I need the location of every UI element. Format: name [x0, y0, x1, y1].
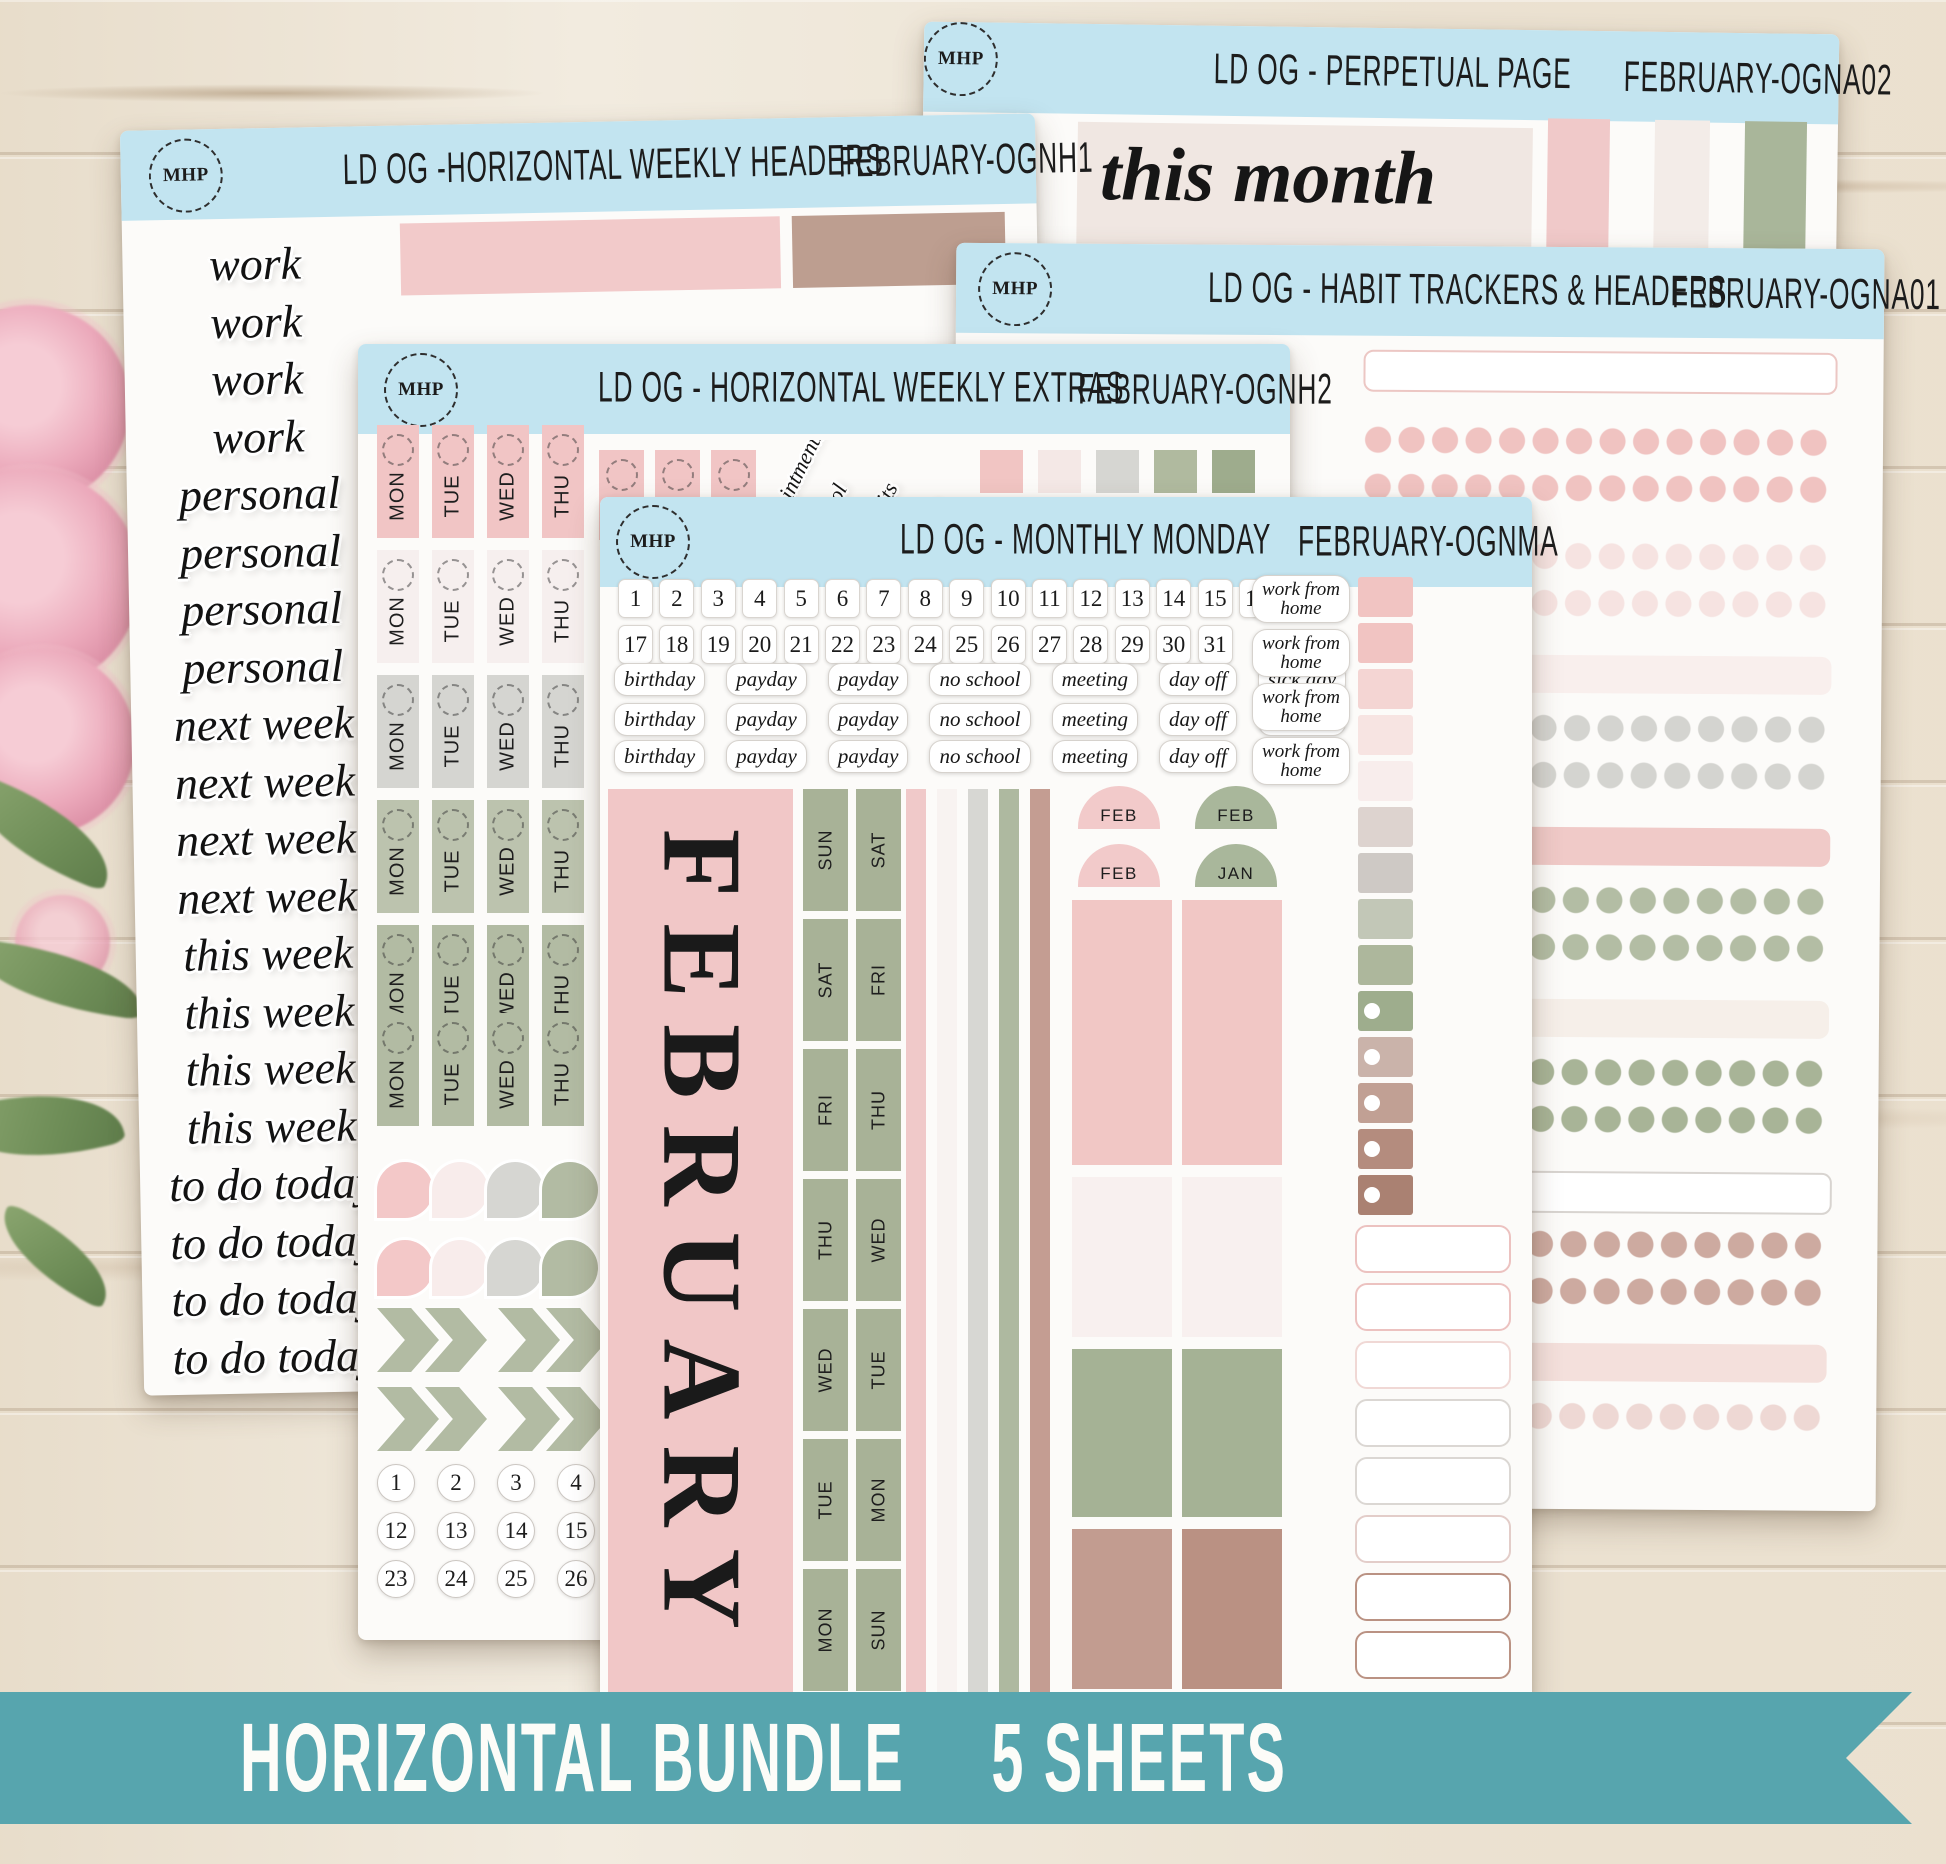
color-squares-row — [980, 450, 1280, 493]
day-tab-sticker: WED — [487, 425, 529, 538]
color-square-sticker — [1212, 450, 1255, 493]
small-square-sticker — [1358, 715, 1413, 755]
sheet-title: LD OG - HORIZONTAL WEEKLY EXTRAS — [598, 365, 1124, 408]
kit-box-sticker — [1182, 1529, 1282, 1689]
outlined-pill-sticker — [1355, 1225, 1511, 1273]
event-word-sticker: payday — [828, 663, 909, 696]
mhp-logo: MHP — [384, 353, 458, 427]
day-column-sticker: SAT — [856, 789, 901, 911]
day-tab-sticker: MON — [377, 800, 419, 913]
outlined-pill-sticker — [1355, 1399, 1511, 1447]
mhp-logo: MHP — [923, 22, 998, 97]
kit-box-sticker — [1182, 1349, 1282, 1517]
script-word-sticker: next week — [139, 870, 395, 923]
day-tab-sticker: WED — [487, 550, 529, 663]
script-word-sticker: work — [127, 238, 383, 291]
outlined-pills-column — [1355, 1225, 1507, 1695]
small-square-sticker — [1358, 669, 1413, 709]
dashed-circle-icon — [492, 684, 524, 716]
small-square-sticker — [1358, 945, 1413, 985]
day-tab-sticker: TUE — [432, 675, 474, 788]
dashed-circle-icon — [382, 559, 414, 591]
outlined-pill-sticker — [1355, 1341, 1511, 1389]
small-square-sticker — [1358, 899, 1413, 939]
color-square-sticker — [980, 450, 1023, 493]
month-tab-sticker: FEB — [1078, 786, 1160, 829]
dashed-circle-icon — [382, 1022, 414, 1054]
mhp-logo: MHP — [148, 138, 223, 213]
dashed-circle-icon — [382, 684, 414, 716]
sheet-code: FEBRUARY-OGNH1 — [838, 135, 1094, 183]
day-column-sticker: SUN — [803, 789, 848, 911]
date-sticker: 3 — [701, 579, 736, 618]
event-word-sticker: payday — [828, 740, 909, 773]
date-sticker: 5 — [784, 579, 819, 618]
small-square-sticker — [1358, 1037, 1413, 1077]
dashed-circle-icon — [718, 459, 750, 491]
small-square-sticker — [1358, 577, 1413, 617]
date-sticker: 23 — [866, 625, 901, 664]
dashed-circle-icon — [437, 934, 469, 966]
number-circle-sticker: 15 — [557, 1512, 595, 1550]
green-leaf — [0, 1071, 126, 1181]
script-word-sticker: work — [129, 353, 385, 406]
date-sticker: 25 — [949, 625, 984, 664]
chevron-sticker — [498, 1387, 610, 1451]
dates-row-2: 171819202122232425262728293031 — [618, 625, 1298, 662]
work-from-home-sticker: work from home — [1252, 737, 1350, 785]
dashed-circle-icon — [382, 809, 414, 841]
script-word-sticker: work — [128, 295, 384, 348]
event-word-sticker: payday — [726, 740, 807, 773]
dashed-circle-icon — [492, 559, 524, 591]
dashed-circle-icon — [492, 809, 524, 841]
event-word-sticker: payday — [828, 703, 909, 736]
event-word-sticker: no school — [929, 663, 1030, 696]
date-sticker: 7 — [866, 579, 901, 618]
sheet-header: MHP LD OG - MONTHLY MONDAY FEBRUARY-OGNM… — [600, 497, 1532, 587]
dashed-circle-icon — [492, 934, 524, 966]
mhp-logo: MHP — [978, 252, 1053, 327]
tracker-row — [1363, 350, 1837, 395]
teardrop-sticker — [432, 1240, 488, 1296]
washi-stripe — [999, 789, 1019, 1694]
teardrop-stickers — [377, 1162, 617, 1302]
date-sticker: 19 — [701, 625, 736, 664]
day-tab-sticker: TUE — [432, 800, 474, 913]
dashed-circle-icon — [547, 434, 579, 466]
script-word-sticker: personal — [134, 583, 390, 636]
chevron-sticker — [377, 1387, 489, 1451]
number-circle-sticker: 26 — [557, 1560, 595, 1598]
day-tab-sticker: MON — [377, 425, 419, 538]
date-sticker: 28 — [1073, 625, 1108, 664]
date-sticker: 22 — [825, 625, 860, 664]
color-square-sticker — [1038, 450, 1081, 493]
number-circle-sticker: 13 — [437, 1512, 475, 1550]
date-sticker: 17 — [618, 625, 653, 664]
date-sticker: 27 — [1032, 625, 1067, 664]
day-column-1: SUNSATFRITHUWEDTUEMON — [803, 789, 848, 1694]
event-word-sticker: birthday — [614, 703, 705, 736]
dashed-circle-icon — [492, 1022, 524, 1054]
dashed-circle-icon — [437, 1022, 469, 1054]
day-column-sticker: MON — [803, 1569, 848, 1691]
tracker-row — [1363, 425, 1833, 458]
outlined-pill-sticker — [1355, 1573, 1511, 1621]
number-circle-sticker: 23 — [377, 1560, 415, 1598]
day-tab-sticker: THU — [542, 1013, 584, 1126]
date-sticker: 15 — [1198, 579, 1233, 618]
dashed-circle-icon — [382, 934, 414, 966]
outlined-pill-sticker — [1355, 1515, 1511, 1563]
day-tab-sticker: TUE — [432, 550, 474, 663]
washi-stripe — [1030, 789, 1050, 1694]
date-sticker: 10 — [991, 579, 1026, 618]
teardrop-sticker — [487, 1240, 543, 1296]
kit-box-sticker — [1182, 1177, 1282, 1337]
day-column-sticker: TUE — [856, 1309, 901, 1431]
number-circle-sticker: 2 — [437, 1464, 475, 1502]
small-square-sticker — [1358, 1129, 1413, 1169]
day-tab-sticker: TUE — [432, 1013, 474, 1126]
sheet-code: FEBRUARY-OGNA02 — [1623, 54, 1892, 101]
kit-box-sticker — [1072, 900, 1172, 1165]
dashed-circle-icon — [437, 809, 469, 841]
teardrop-sticker — [377, 1240, 433, 1296]
date-sticker: 4 — [742, 579, 777, 618]
dashed-circle-icon — [547, 559, 579, 591]
script-word-sticker: personal — [132, 468, 388, 521]
number-circle-sticker: 1 — [377, 1464, 415, 1502]
date-sticker: 8 — [908, 579, 943, 618]
script-word-sticker: personal — [135, 640, 391, 693]
date-sticker: 29 — [1115, 625, 1150, 664]
washi-stripe — [937, 789, 957, 1694]
event-word-sticker: no school — [929, 740, 1030, 773]
dashed-circle-icon — [606, 459, 638, 491]
dashed-circle-icon — [547, 1022, 579, 1054]
circled-numbers: 12341213141523242526 — [377, 1464, 637, 1614]
event-word-sticker: day off — [1159, 740, 1237, 773]
event-words-row: birthdaypaydaypaydayno schoolmeetingday … — [614, 663, 1346, 696]
day-tab-sticker: THU — [542, 550, 584, 663]
event-word-sticker: meeting — [1052, 663, 1138, 696]
event-word-sticker: no school — [929, 703, 1030, 736]
color-square-sticker — [1096, 450, 1139, 493]
script-word-sticker: next week — [138, 813, 394, 866]
day-column-sticker: SAT — [803, 919, 848, 1041]
day-column-2: SATFRITHUWEDTUEMONSUN — [856, 789, 901, 1694]
green-leaf — [0, 1203, 125, 1310]
day-tab-sticker: TUE — [432, 425, 474, 538]
month-name: FEBRUARY — [636, 828, 765, 1654]
month-banner: FEBRUARY — [608, 789, 793, 1694]
script-word-sticker: work — [130, 410, 386, 463]
day-column-sticker: SUN — [856, 1569, 901, 1691]
date-sticker: 20 — [742, 625, 777, 664]
date-sticker: 21 — [784, 625, 819, 664]
kit-box-sticker — [1072, 1349, 1172, 1517]
date-sticker: 13 — [1115, 579, 1150, 618]
number-circle-sticker: 4 — [557, 1464, 595, 1502]
header-bar-pink — [400, 216, 781, 295]
event-word-sticker: birthday — [614, 740, 705, 773]
dashed-circle-icon — [547, 934, 579, 966]
day-column-sticker: MON — [856, 1439, 901, 1561]
script-word-sticker: next week — [136, 698, 392, 751]
month-tab-sticker: FEB — [1078, 844, 1160, 887]
dashed-circle-icon — [437, 559, 469, 591]
day-tab-sticker: THU — [542, 425, 584, 538]
day-column-sticker: FRI — [856, 919, 901, 1041]
day-column-sticker: WED — [803, 1309, 848, 1431]
day-tab-sticker: WED — [487, 800, 529, 913]
date-sticker: 12 — [1073, 579, 1108, 618]
date-sticker: 1 — [618, 579, 653, 618]
teardrop-sticker — [377, 1162, 433, 1218]
script-word-sticker: next week — [137, 755, 393, 808]
dates-row-1: 12345678910111213141516 — [618, 579, 1298, 616]
kit-box-sticker — [1072, 1177, 1172, 1337]
work-from-home-sticker: work from home — [1252, 683, 1350, 731]
small-square-sticker — [1358, 1175, 1413, 1215]
ombre-square-column — [1358, 577, 1413, 1277]
month-tab-sticker: JAN — [1195, 844, 1277, 887]
kit-box-sticker — [1182, 900, 1282, 1165]
sheet-header: MHP LD OG - HORIZONTAL WEEKLY EXTRAS FEB… — [358, 344, 1290, 434]
event-word-sticker: birthday — [614, 663, 705, 696]
date-sticker: 26 — [991, 625, 1026, 664]
small-square-sticker — [1358, 761, 1413, 801]
wfh-stickers: work from homework from homework from ho… — [1252, 575, 1352, 805]
dashed-circle-icon — [547, 809, 579, 841]
product-photo: MHP LD OG - PERPETUAL PAGE FEBRUARY-OGNA… — [0, 0, 1946, 1864]
sheet-code: FEBRUARY-OGNMA — [1298, 519, 1559, 562]
number-circle-sticker: 3 — [497, 1464, 535, 1502]
event-words-row: birthdaypaydaypaydayno schoolmeetingday … — [614, 740, 1346, 773]
sheet-title: LD OG - PERPETUAL PAGE — [1213, 47, 1572, 95]
outlined-pill-sticker — [1355, 1283, 1511, 1331]
number-circle-sticker: 25 — [497, 1560, 535, 1598]
script-word-sticker: personal — [133, 525, 389, 578]
dashed-circle-icon — [437, 684, 469, 716]
chevron-sticker — [377, 1308, 489, 1372]
event-word-sticker: meeting — [1052, 740, 1138, 773]
color-square-sticker — [1154, 450, 1197, 493]
day-column-sticker: THU — [856, 1049, 901, 1171]
event-word-sticker: payday — [726, 703, 807, 736]
small-square-sticker — [1358, 991, 1413, 1031]
sheet-code: FEBRUARY-OGNH2 — [1078, 367, 1333, 410]
teardrop-sticker — [542, 1162, 598, 1218]
date-sticker: 9 — [949, 579, 984, 618]
sheet-title: LD OG -HORIZONTAL WEEKLY HEADERS — [342, 137, 884, 190]
dashed-circle-icon — [382, 434, 414, 466]
day-tab-sticker: THU — [542, 675, 584, 788]
chevron-sticker — [498, 1308, 610, 1372]
event-word-sticker: day off — [1159, 663, 1237, 696]
small-square-sticker — [1358, 853, 1413, 893]
day-tab-sticker: MON — [377, 1013, 419, 1126]
sheet-header: MHP LD OG - PERPETUAL PAGE FEBRUARY-OGNA… — [923, 22, 1839, 125]
day-tab-sticker: WED — [487, 1013, 529, 1126]
day-tab-sticker: THU — [542, 800, 584, 913]
work-from-home-sticker: work from home — [1252, 575, 1350, 623]
sheet-monthly-monday: MHP LD OG - MONTHLY MONDAY FEBRUARY-OGNM… — [600, 497, 1532, 1702]
kit-box-sticker — [1072, 1529, 1172, 1689]
dashed-circle-icon — [437, 434, 469, 466]
sheet-title: LD OG - MONTHLY MONDAY — [900, 517, 1271, 560]
teardrop-sticker — [487, 1162, 543, 1218]
date-sticker: 18 — [659, 625, 694, 664]
outlined-pill-sticker — [1355, 1457, 1511, 1505]
teardrop-sticker — [432, 1162, 488, 1218]
event-words-row: birthdaypaydaypaydayno schoolmeetingday … — [614, 703, 1346, 736]
day-column-sticker: THU — [803, 1179, 848, 1301]
banner-count: 5 SHEETS — [991, 1709, 1287, 1807]
washi-stripe — [906, 789, 926, 1694]
day-column-sticker: TUE — [803, 1439, 848, 1561]
day-column-sticker: FRI — [803, 1049, 848, 1171]
date-sticker: 11 — [1032, 579, 1067, 618]
number-circle-sticker: 24 — [437, 1560, 475, 1598]
banner-title: HORIZONTAL BUNDLE — [240, 1709, 905, 1807]
teardrop-sticker — [542, 1240, 598, 1296]
date-sticker: 31 — [1198, 625, 1233, 664]
ribbon-banner: HORIZONTAL BUNDLE 5 SHEETS — [0, 1692, 1912, 1824]
dashed-circle-icon — [662, 459, 694, 491]
number-circle-sticker: 14 — [497, 1512, 535, 1550]
work-from-home-sticker: work from home — [1252, 629, 1350, 677]
date-sticker: 14 — [1156, 579, 1191, 618]
number-circle-sticker: 12 — [377, 1512, 415, 1550]
event-word-sticker: payday — [726, 663, 807, 696]
mhp-logo: MHP — [616, 505, 690, 579]
event-word-sticker: meeting — [1052, 703, 1138, 736]
date-sticker: 2 — [659, 579, 694, 618]
day-column-sticker: WED — [856, 1179, 901, 1301]
small-square-sticker — [1358, 623, 1413, 663]
day-tab-sticker: WED — [487, 675, 529, 788]
dashed-circle-icon — [492, 434, 524, 466]
washi-stripe — [968, 789, 988, 1694]
dashed-circle-icon — [547, 684, 579, 716]
date-sticker: 30 — [1156, 625, 1191, 664]
outlined-pill-sticker — [1355, 1631, 1511, 1679]
day-tab-sticker: MON — [377, 675, 419, 788]
date-sticker: 6 — [825, 579, 860, 618]
day-tab-sticker: MON — [377, 550, 419, 663]
sheet-header: MHP LD OG -HORIZONTAL WEEKLY HEADERS FEB… — [120, 113, 1037, 221]
this-month-sticker: this month — [1100, 136, 1437, 217]
date-sticker: 24 — [908, 625, 943, 664]
event-word-sticker: day off — [1159, 703, 1237, 736]
small-square-sticker — [1358, 1083, 1413, 1123]
small-square-sticker — [1358, 807, 1413, 847]
